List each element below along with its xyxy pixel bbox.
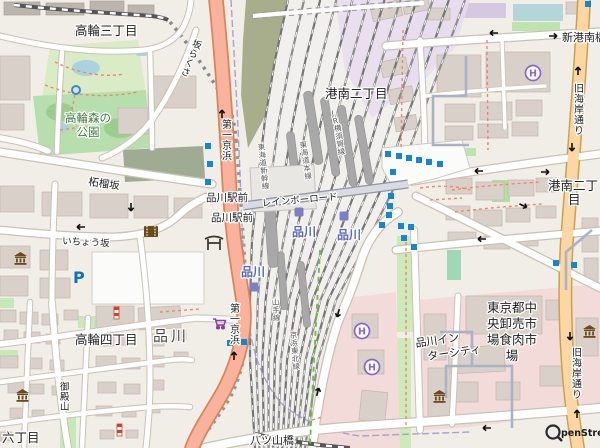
building — [134, 196, 168, 218]
bus-stop-icon — [385, 151, 391, 157]
label-shinagawa-place: 品川 — [153, 327, 189, 345]
bus-stop-icon — [408, 224, 414, 230]
building — [10, 408, 24, 418]
label-daiichi-keihin-south: 第一京浜 — [230, 302, 240, 347]
building — [0, 104, 24, 130]
bus-stop-icon — [426, 159, 432, 165]
label-kyukaigan-dori-south: 旧海岸通り — [572, 347, 582, 401]
label-konan-2chome-right: 港南二丁 — [548, 178, 598, 193]
building — [42, 192, 82, 216]
building — [480, 102, 512, 120]
building — [64, 310, 78, 320]
station-marker-icon — [295, 208, 304, 217]
station-marker-icon — [250, 283, 259, 292]
label-shinagawa-ekimae-1: 品川駅前 — [206, 191, 248, 204]
label-gotenyama: 御殿山 — [60, 381, 70, 413]
label-shin-konanbashi: 新港南橋 — [562, 30, 600, 44]
bus-stop-icon — [379, 222, 385, 228]
teal-building — [513, 4, 563, 21]
label-takanawa-4chome: 高輪四丁目 — [75, 332, 138, 347]
building — [126, 430, 138, 438]
bus-stop-icon — [386, 212, 392, 218]
building — [540, 366, 564, 386]
building — [0, 56, 30, 100]
svg-text:H: H — [368, 362, 376, 373]
bus-stop-icon — [401, 235, 407, 241]
label-takanawa-3chome: 高輪三丁目 — [75, 23, 138, 38]
label-shinagawa-station-3: 品川 — [241, 265, 265, 279]
bus-stop-icon — [207, 161, 213, 167]
bus-stop-icon — [398, 223, 404, 229]
map-canvas[interactable]: P H H H 高輪三丁目 高輪森の 公園 坂らくさ 港南二丁目 港南二丁 目 … — [0, 0, 600, 448]
building — [359, 390, 388, 423]
building — [428, 8, 450, 20]
label-takanawa-mori-park: 高輪森の — [65, 111, 111, 125]
building — [30, 384, 44, 394]
building — [0, 186, 34, 212]
building — [0, 356, 18, 368]
label-konan-2chome-right: 目 — [568, 192, 581, 207]
label-shinagawa-station-2: 品川 — [337, 228, 361, 242]
label-shinagawa-station-1: 品川 — [292, 225, 316, 239]
osm-attribution: penStreetMap — [547, 426, 600, 442]
bus-stop-icon — [406, 155, 412, 161]
building — [0, 276, 28, 296]
svg-text:H: H — [529, 68, 537, 79]
label-kyukaigan-dori-north: 旧海岸通り — [574, 83, 584, 137]
pond — [72, 60, 100, 76]
bus-stop-icon — [396, 153, 402, 159]
building — [0, 310, 16, 322]
svg-text:H: H — [358, 326, 366, 337]
building — [98, 382, 116, 393]
bus-stop-icon — [411, 244, 417, 250]
label-yatsuyamabashi: 八ツ山橋 — [250, 433, 294, 447]
label-konan-2chome-center: 港南二丁目 — [325, 86, 388, 101]
building — [446, 178, 472, 194]
building — [445, 126, 473, 140]
building — [90, 194, 128, 218]
building — [445, 104, 475, 122]
label-meat-market: 場 — [506, 348, 519, 363]
building — [124, 384, 140, 394]
building — [506, 208, 530, 222]
bus-stop-icon — [387, 203, 393, 209]
bus-stop-icon — [585, 1, 591, 7]
bus-stop-icon — [388, 193, 394, 199]
building — [536, 206, 556, 218]
bus-stop-icon — [437, 161, 443, 167]
bus-stop-icon — [205, 143, 211, 149]
osm-attribution-text: penStreetMap — [561, 428, 600, 439]
station-marker-icon — [340, 212, 349, 221]
fountain-icon — [72, 86, 80, 94]
building — [516, 100, 542, 116]
cinema-icon — [144, 226, 158, 237]
label-rokuchome: 六丁目 — [2, 430, 40, 445]
bus-stop-icon — [205, 179, 211, 185]
building — [496, 382, 520, 400]
label-meat-market: 場食肉市 — [487, 332, 537, 347]
parking-icon: P — [73, 268, 85, 287]
label-shinagawa-ekimae-2: 品川駅前 — [211, 211, 253, 224]
label-meat-market: 東京都中 — [487, 300, 537, 315]
label-meat-market: 央卸売市 — [487, 316, 537, 331]
bus-stop-icon — [390, 169, 396, 175]
bus-stop-icon — [416, 157, 422, 163]
building — [100, 430, 114, 439]
bus-stop-icon — [553, 260, 559, 266]
label-daiichi-keihin-north: 第一京浜 — [222, 118, 232, 163]
bus-stop-icon — [241, 339, 247, 345]
label-takanawa-mori-park: 公園 — [77, 125, 100, 139]
building — [512, 122, 538, 136]
bus-stop-icon — [571, 262, 577, 268]
